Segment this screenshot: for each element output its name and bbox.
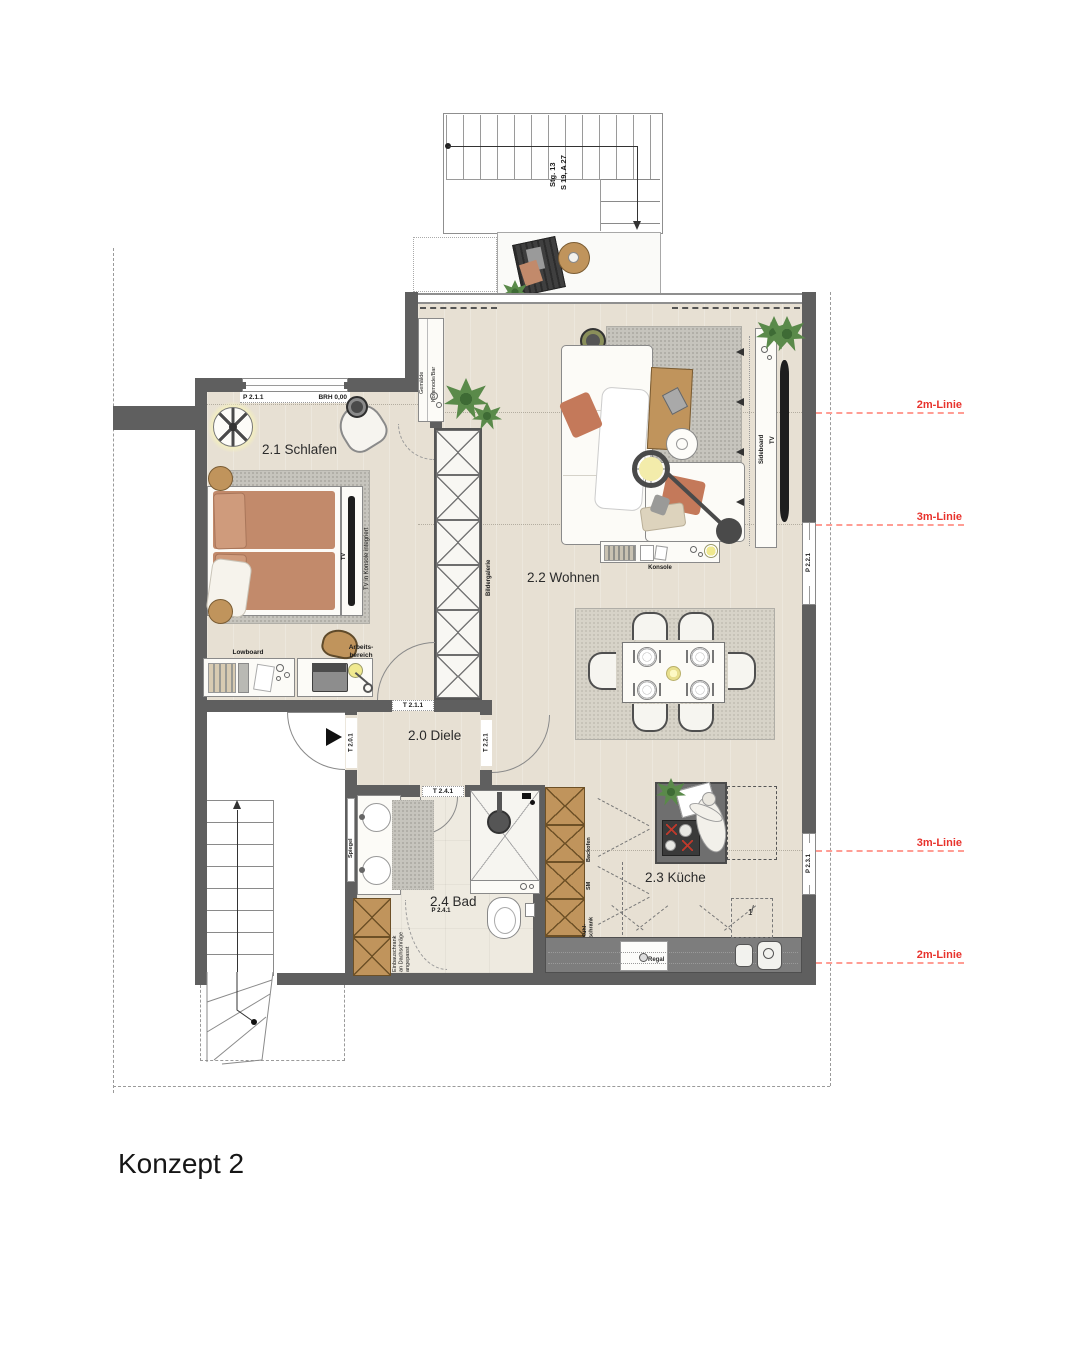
bath-cabinet: [353, 937, 391, 976]
height-line-2m-bottom: [816, 962, 964, 964]
desk-laptop-screen: [312, 663, 346, 672]
wall-bedroom-bottom-a: [195, 700, 392, 712]
stair-winder: [202, 972, 282, 1067]
room-label-schlafen: 2.1 Schlafen: [262, 442, 337, 457]
dining-chair: [678, 704, 714, 732]
toilet-flush-plate: [525, 903, 535, 917]
side-table-deco: [676, 438, 688, 450]
person-figure-head: [702, 792, 716, 806]
sink-faucet-dot: [359, 814, 365, 820]
height-line-2m-top-label: 2m-Linie: [870, 399, 962, 411]
spiegel-label: Spiegel: [348, 818, 355, 858]
knee-wall-dashes-right: [672, 307, 800, 309]
window-p221-label: P 2.2.1: [804, 540, 814, 586]
sideboard-deco-2: [767, 355, 772, 360]
bath-cabinet: [353, 898, 391, 937]
terrace-glazing-band: [418, 293, 802, 304]
dining-chair: [632, 704, 668, 732]
console-box-2: [654, 545, 668, 561]
cooktop-flame-mark: [682, 840, 693, 851]
dining-chair: [678, 612, 714, 640]
wardrobe-cell: [436, 430, 480, 475]
wall-stairwell-left: [195, 712, 207, 985]
wall-bedroom-bottom-b: [434, 700, 480, 712]
lowboard-vase-2: [284, 672, 290, 678]
counter-kettle: [735, 944, 753, 967]
sofa-blanket: [594, 386, 650, 511]
dining-chair: [632, 612, 668, 640]
counter-mixer-bowl: [763, 948, 774, 959]
cooktop-pot: [679, 824, 692, 837]
place-setting: [690, 647, 710, 667]
room-label-diele: 2.0 Diele: [408, 728, 461, 743]
wardrobe-cell: [436, 610, 480, 655]
place-setting: [637, 680, 657, 700]
bed-pillow-top: [213, 492, 247, 549]
wardrobe-cell: [436, 475, 480, 520]
stair-label-dims: S 19, A 27: [559, 122, 568, 190]
window-p211-brh: BRH 0,00: [318, 394, 347, 401]
kuehlschrank-label: Kühl- schrank: [582, 898, 595, 938]
dining-pendant-light: [666, 666, 681, 681]
kommode-deco-2: [436, 402, 442, 408]
tv-zone-dotted: [749, 336, 750, 546]
page-title: Konzept 2: [118, 1148, 244, 1180]
shelf-glass: [520, 883, 527, 890]
height-line-3m-top-label: 3m-Linie: [870, 511, 962, 523]
door-t211-label: T 2.1.1: [392, 700, 434, 711]
place-setting: [690, 680, 710, 700]
room-label-kueche: 2.3 Küche: [645, 870, 706, 885]
ceiling-fan-hub: [229, 423, 237, 431]
lowboard-label: Lowboard: [218, 648, 278, 657]
height-line-3m-bottom: [816, 850, 964, 852]
stair-lower-walkline: [237, 810, 238, 972]
bath-sink: [362, 803, 391, 832]
window-p211: [242, 378, 348, 392]
wall-hall-left-upper: [345, 700, 357, 715]
door-arc-entrance: [287, 712, 345, 770]
konsole-label: Konsole: [600, 565, 720, 572]
stair-walkline-h: [448, 146, 637, 147]
door-t241-label: T 2.4.1: [422, 786, 464, 797]
floor-plan: Stg. 13 S 19, A 27 2m-Linie 3m-Linie 3m-…: [0, 0, 1080, 1350]
tv-view-arrow-icon: [736, 448, 744, 456]
room-label-wohnen: 2.2 Wohnen: [527, 570, 600, 585]
shower-control-dot: [530, 800, 535, 805]
toilet-inner: [494, 907, 516, 934]
stair-label-count: Stg. 13: [548, 125, 557, 187]
door-t201-label: T 2.0.1: [346, 718, 357, 768]
wall-bedroom-top-left: [195, 378, 242, 392]
knee-wall-dashes-left: [420, 307, 497, 309]
stair-lower-arrow-icon: [233, 800, 241, 809]
tv-screen-wall: [780, 360, 789, 522]
nightstand-top: [208, 466, 233, 491]
wardrobe-cell: [436, 520, 480, 565]
gemaelde-divider: [427, 319, 428, 421]
wall-hall-right-upper: [480, 700, 492, 715]
hall-floor: [357, 712, 480, 785]
dormer-dotted-outline: [413, 237, 497, 292]
stair-upper-landing-treads: [600, 179, 660, 231]
console-lamp: [704, 544, 718, 558]
lowboard-vase-3: [276, 676, 281, 681]
tv-view-arrow-icon: [736, 498, 744, 506]
sink-faucet-dot: [359, 867, 365, 873]
wall-left-stub: [113, 406, 195, 430]
door-t221-label: T 2.2.1: [481, 720, 492, 766]
dining-chair: [588, 652, 616, 690]
shelf-glass: [529, 884, 534, 889]
height-line-2m-bottom-label: 2m-Linie: [870, 949, 962, 961]
arc-lamp-shade: [632, 450, 670, 488]
shower-head-arm: [497, 792, 502, 812]
stair-walkline-v: [637, 146, 638, 222]
console-box-1: [640, 545, 654, 561]
stair-walkline-arrow-icon: [633, 221, 641, 230]
terrace-table-detail: [568, 252, 579, 263]
lowboard-binder: [238, 663, 249, 693]
site-boundary-left: [113, 248, 114, 1093]
cooktop-flame-mark: [666, 824, 677, 835]
dining-chair: [728, 652, 756, 690]
tv-konsole-note: TV in Konsole integriert: [364, 498, 371, 590]
sideboard-label: Sideboard: [759, 402, 766, 464]
window-p211-label: P 2.1.1 BRH 0,00: [240, 392, 350, 403]
wardrobe-cell: [436, 655, 480, 698]
regal-label: Regal: [648, 957, 664, 964]
window-p231-label: P 2.3.1: [804, 843, 814, 885]
tv-screen-bedroom: [348, 496, 355, 606]
bath-rug: [392, 800, 434, 890]
arbeitsbereich-label: Arbeits- bereich: [340, 644, 382, 660]
island-extension-dashed: [727, 786, 777, 860]
tv-view-arrow-icon: [736, 398, 744, 406]
kitchen-tall-cabinet: [545, 787, 585, 825]
kommode-deco-1: [430, 392, 438, 400]
desk-lamp-base: [363, 683, 373, 693]
lowboard-books: [208, 663, 236, 693]
tv-view-arrow-icon: [736, 348, 744, 356]
bildergalerie-label: Bildergalerie: [486, 532, 493, 596]
kitchen-roof-dash-v: [622, 862, 623, 935]
lowboard-vase-1: [276, 664, 284, 672]
site-boundary-bottom: [113, 1086, 830, 1087]
window-p211-number: P 2.1.1: [243, 394, 263, 401]
console-deco-2: [698, 552, 703, 557]
backofen-label: Backofen: [586, 824, 593, 862]
place-setting: [637, 647, 657, 667]
height-line-3m-top: [816, 524, 964, 526]
cooktop-pot: [665, 840, 676, 851]
kitchen-faucet: [639, 953, 648, 962]
gemaelde-label: Gemälde: [419, 342, 426, 394]
kitchen-tall-cabinet: [545, 862, 585, 899]
kitchen-tall-cabinet: [545, 899, 585, 936]
console-deco-1: [690, 546, 697, 553]
kitchen-tall-cabinet: [545, 825, 585, 862]
console-books: [604, 545, 636, 561]
reading-lamp-icon: [346, 396, 368, 418]
nightstand-bottom: [208, 599, 233, 624]
wardrobe-cell: [436, 565, 480, 610]
tv-label-bedroom: TV: [341, 542, 348, 560]
shower-head: [487, 810, 511, 834]
tv-label-wall: TV: [770, 424, 777, 444]
bath-sink: [362, 856, 391, 885]
stair-lower-treads: [207, 800, 274, 976]
shower-control: [522, 793, 531, 799]
sm-label: SM: [586, 874, 593, 890]
wall-living-top-left-corner: [405, 292, 418, 392]
height-line-3m-bottom-label: 3m-Linie: [870, 837, 962, 849]
height-line-2m-top: [816, 412, 964, 414]
